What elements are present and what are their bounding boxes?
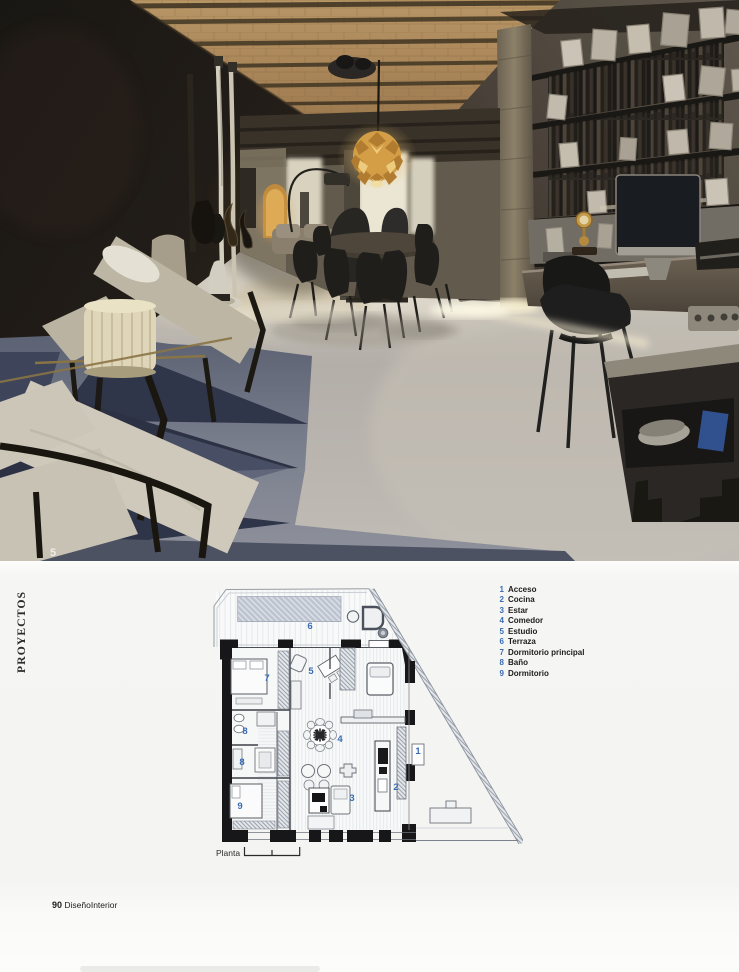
svg-text:6: 6 (307, 621, 312, 632)
svg-text:5: 5 (308, 666, 314, 677)
svg-text:3: 3 (349, 793, 354, 804)
svg-text:1: 1 (415, 746, 421, 757)
svg-text:9: 9 (237, 801, 242, 812)
svg-text:8: 8 (239, 757, 244, 768)
svg-text:8: 8 (242, 726, 247, 737)
svg-text:7: 7 (264, 673, 269, 684)
svg-text:2: 2 (393, 782, 398, 793)
svg-text:4: 4 (337, 734, 343, 745)
